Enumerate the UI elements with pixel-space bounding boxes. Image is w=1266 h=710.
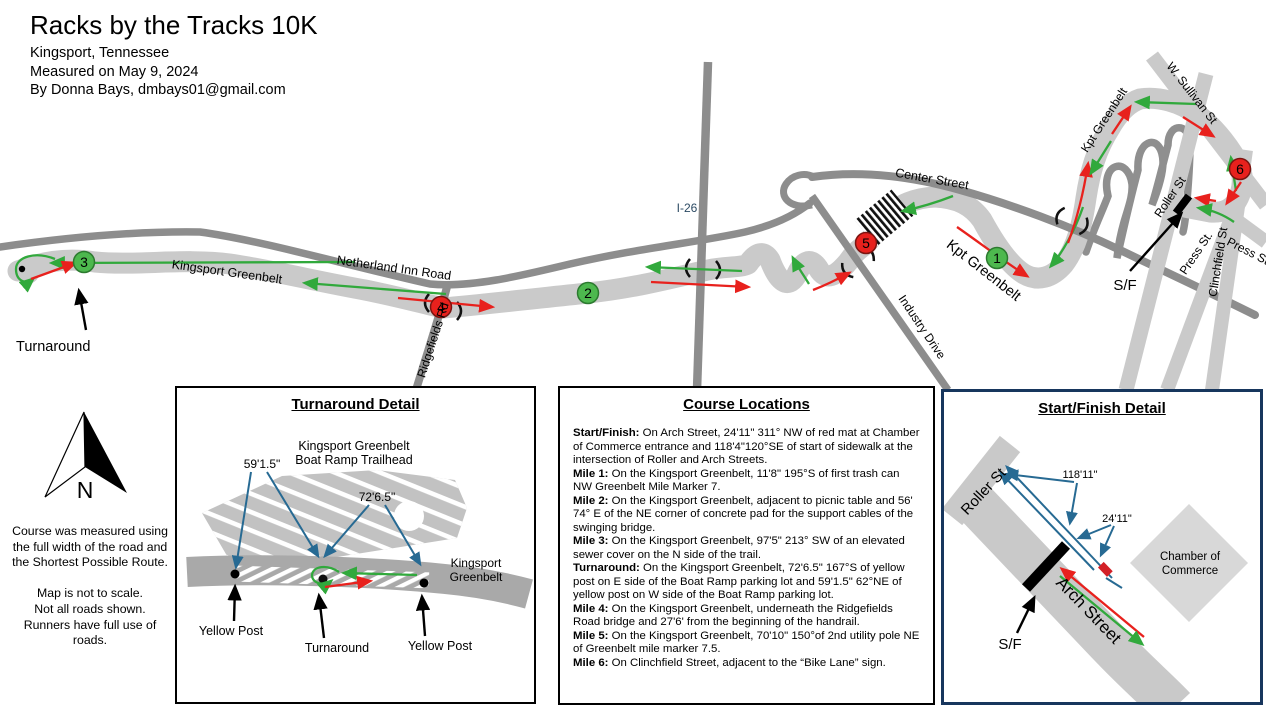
greenbelt-label-line2: Greenbelt [450,570,503,584]
course-item-mile4: Mile 4: On the Kingsport Greenbelt, unde… [573,603,921,630]
svg-text:3: 3 [80,254,88,270]
course-locations-body: Start/Finish: On Arch Street, 24'11" 311… [560,417,933,670]
turnaround-dot [319,575,328,584]
svg-text:1: 1 [993,250,1001,266]
course-item-mile1: Mile 1: On the Kingsport Greenbelt, 11'8… [573,468,921,495]
trailhead-label-line2: Boat Ramp Trailhead [295,453,412,467]
mile-marker-2: 2 [578,283,599,304]
header: Racks by the Tracks 10K Kingsport, Tenne… [30,10,318,100]
chamber-of-commerce-building [1130,504,1248,622]
north-compass: N [38,400,138,513]
svg-text:5: 5 [862,235,870,251]
turnaround-callout-arrow [79,291,86,330]
chamber-label-line2: Commerce [1162,565,1218,577]
header-measured-date: Measured on May 9, 2024 [30,63,318,82]
mile-marker-6: 6 [1230,159,1251,180]
compass-n-label: N [77,477,94,503]
sf-label: S/F [998,636,1021,653]
measurement-west-label: 59'1.5" [244,457,281,471]
label-turnaround: Turnaround [16,339,90,355]
turnaround-dot [19,266,25,272]
yellow-post-left-label: Yellow Post [199,624,264,638]
course-item-mile3: Mile 3: On the Kingsport Greenbelt, 97'5… [573,535,921,562]
note-scale: Map is not to scale. Not all roads shown… [4,586,176,649]
trailhead-label-line1: Kingsport Greenbelt [298,439,410,453]
kingsport-greenbelt-path [18,98,1242,308]
course-item-mile5: Mile 5: On the Kingsport Greenbelt, 70'1… [573,630,921,657]
start-finish-detail-title: Start/Finish Detail [944,400,1260,417]
note-measurement: Course was measured using the full width… [4,524,176,571]
label-i26: I-26 [677,201,698,215]
header-city: Kingsport, Tennessee [30,44,318,63]
course-map-page: 3 4 2 5 1 6 Kingsport Greenbelt Netherla… [0,0,1266,710]
yellow-post-left-arrow [234,587,235,621]
course-locations-box: Course Locations Start/Finish: On Arch S… [558,386,935,705]
yellow-post-right-arrow [422,597,425,636]
yellow-post-right-dot [420,579,429,588]
start-finish-detail-box: Roller St Arch Street 118'11" 24'11" Cha… [941,389,1263,705]
sf-callout-arrow [1017,598,1034,633]
turnaround-arrow [319,596,324,638]
svg-text:2: 2 [584,285,592,301]
mile-marker-3: 3 [74,252,95,273]
svg-text:6: 6 [1236,161,1244,177]
course-item-mile2: Mile 2: On the Kingsport Greenbelt, adja… [573,495,921,536]
measurement-east-label: 72'6.5" [359,490,396,504]
header-author: By Donna Bays, dmbays01@gmail.com [30,81,318,100]
turnaround-detail-title: Turnaround Detail [177,396,534,413]
turnaround-label: Turnaround [305,641,369,655]
yellow-post-left-dot [231,570,240,579]
turnaround-detail-box: Kingsport Greenbelt Boat Ramp Trailhead … [175,386,536,704]
yellow-post-right-label: Yellow Post [408,639,473,653]
greenbelt-label-line1: Kingsport [451,556,502,570]
chamber-label-line1: Chamber of [1160,551,1221,563]
measurement-long-label: 118'11" [1063,469,1098,481]
i26-path [697,62,708,390]
course-item-mile6: Mile 6: On Clinchfield Street, adjacent … [573,657,921,671]
mile-marker-5: 5 [856,233,877,254]
page-title: Racks by the Tracks 10K [30,10,318,41]
course-item-start-finish: Start/Finish: On Arch Street, 24'11" 311… [573,427,921,468]
course-locations-title: Course Locations [560,396,933,413]
map-notes: Course was measured using the full width… [4,524,176,649]
label-sf: S/F [1113,277,1136,294]
measurement-short-label: 24'11" [1102,513,1132,525]
course-item-turnaround: Turnaround: On the Kingsport Greenbelt, … [573,562,921,603]
